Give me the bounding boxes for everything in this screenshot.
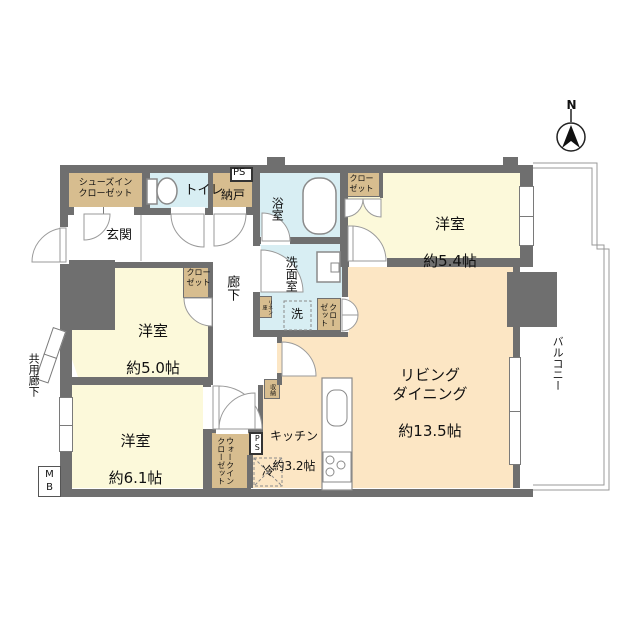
closet50-label: クロー ゼット <box>185 268 212 288</box>
room61-door-leaf <box>213 386 219 429</box>
room50-label: 洋室 約5.0帖 <box>98 303 208 397</box>
living-size: 約13.5帖 <box>355 422 505 441</box>
washroom-label: 洗面室 <box>284 246 297 301</box>
closet54-door-arc-right <box>363 199 381 217</box>
genkan-label: 玄関 <box>94 228 144 244</box>
living-label: リビング ダイニング 約13.5帖 <box>355 347 505 460</box>
room61-name: 洋室 <box>78 432 193 451</box>
bath-label: 浴室 <box>270 186 283 232</box>
shoes-closet-label: シューズイン クローゼット <box>69 178 142 201</box>
washer-label: 洗 <box>288 307 306 322</box>
closet54-label: クロー ゼット <box>344 174 379 194</box>
balcony-outline-outer <box>533 163 609 490</box>
bathtub-icon <box>303 178 336 234</box>
closet-ld-door-arc-bottom <box>342 315 358 331</box>
room54-label: 洋室 約5.4帖 <box>390 196 510 290</box>
room54-name: 洋室 <box>390 215 510 234</box>
kitchen-door-arc <box>282 342 316 376</box>
closet54-door-arc-left <box>345 199 363 217</box>
room54-door-leaf <box>348 226 353 261</box>
hall-label: 廊下 <box>224 264 238 312</box>
room54-size: 約5.4帖 <box>390 252 510 271</box>
room50-name: 洋室 <box>98 322 208 341</box>
closet-ld-label: クロー ゼット <box>319 301 337 329</box>
toilet-door-arc <box>171 214 204 247</box>
linen-label: リネン庫 <box>261 298 272 316</box>
mb-label: M B <box>38 468 61 494</box>
toilet-bowl-icon <box>157 178 177 204</box>
room50-size: 約5.0帖 <box>98 359 208 378</box>
compass-label: N <box>564 98 579 113</box>
toilet-tank-icon <box>147 179 157 204</box>
shuno-label: 収納 <box>268 381 275 398</box>
closet-ld-door-arc-top <box>342 299 358 315</box>
room61-label: 洋室 約6.1帖 <box>78 413 193 507</box>
nando-label: 納戸 <box>212 188 254 203</box>
entrance-door-leaf <box>60 228 66 262</box>
room54-door-arc <box>351 226 386 261</box>
floor-plan: N シューズイン クローゼット トイレ PS 納戸 浴室 クロー ゼット 玄関 … <box>0 0 640 640</box>
wic-label: ウォークイン クローゼット <box>216 436 234 486</box>
kitchen-size: 約3.2帖 <box>248 459 340 474</box>
vanity-sink-icon <box>331 263 339 272</box>
balcony-label: バルコニー <box>551 331 563 395</box>
living-name: リビング ダイニング <box>355 366 505 404</box>
compass-icon <box>557 109 585 151</box>
nando-door-arc <box>214 214 246 246</box>
common-corridor-label: 共用廊下 <box>27 343 39 407</box>
balcony-outline-inner <box>533 168 604 485</box>
room61-size: 約6.1帖 <box>78 469 193 488</box>
